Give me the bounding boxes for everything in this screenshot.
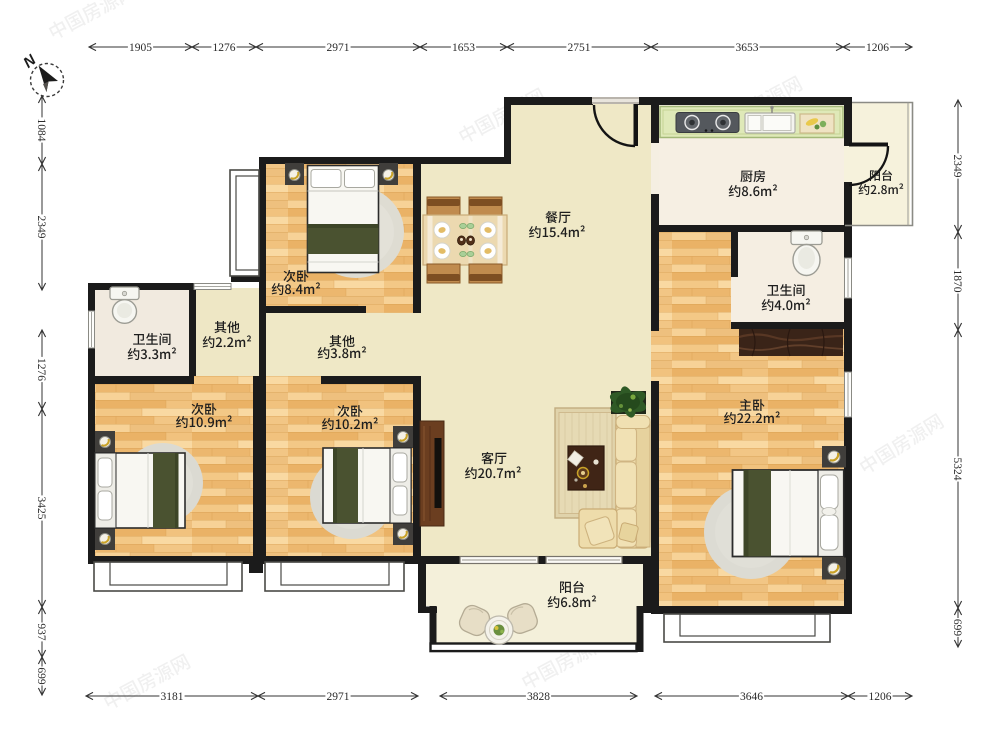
svg-text:2971: 2971 — [327, 42, 350, 54]
svg-text:1905: 1905 — [129, 42, 152, 54]
svg-text:699: 699 — [35, 667, 47, 685]
svg-text:699: 699 — [951, 619, 963, 637]
svg-text:2349: 2349 — [35, 216, 47, 239]
svg-text:1653: 1653 — [452, 42, 475, 54]
svg-text:1206: 1206 — [866, 42, 889, 54]
svg-text:3181: 3181 — [161, 691, 184, 703]
svg-text:3653: 3653 — [736, 42, 759, 54]
svg-text:2349: 2349 — [951, 155, 963, 178]
svg-text:1870: 1870 — [951, 270, 963, 293]
svg-text:937: 937 — [35, 623, 47, 641]
svg-text:1084: 1084 — [35, 119, 47, 142]
svg-text:N: N — [20, 51, 40, 72]
svg-text:2971: 2971 — [327, 691, 350, 703]
svg-text:3425: 3425 — [35, 497, 47, 520]
svg-text:5324: 5324 — [951, 458, 963, 481]
svg-text:3646: 3646 — [740, 691, 763, 703]
svg-text:1276: 1276 — [35, 358, 47, 381]
svg-text:2751: 2751 — [568, 42, 591, 54]
svg-text:1206: 1206 — [869, 691, 892, 703]
svg-text:3828: 3828 — [527, 691, 550, 703]
svg-text:1276: 1276 — [213, 42, 236, 54]
